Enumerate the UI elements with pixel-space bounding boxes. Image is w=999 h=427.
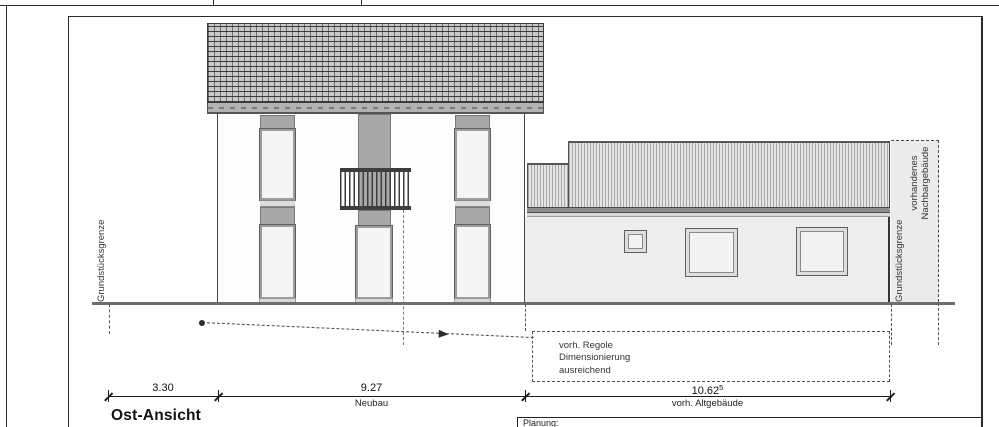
dimension-value-1062: 10.625	[525, 383, 890, 397]
dimension-value-927: 9.27	[218, 382, 525, 394]
property-boundary-line-right	[891, 304, 892, 345]
altgebaeude-window-middle	[685, 228, 738, 277]
altgebaeude-roof-high-segment	[568, 141, 890, 207]
neighbor-label-line2: Nachbargebäude	[920, 133, 931, 233]
left-lower-window	[260, 225, 295, 299]
dimension-number: 10.62	[692, 385, 720, 397]
window-pane	[800, 231, 844, 272]
right-window-header-panel	[455, 115, 490, 129]
balcony	[340, 168, 411, 210]
center-pier-lower	[358, 210, 391, 226]
left-window-sill	[260, 200, 295, 207]
header-separator-line	[361, 0, 362, 5]
neighbor-zone-dashed-line	[938, 303, 939, 345]
left-spandrel-panel	[260, 207, 295, 225]
note-line2: Dimensionierung	[559, 352, 630, 364]
center-pier-upper	[358, 114, 391, 169]
arrowhead-icon	[439, 329, 449, 337]
neubau-label: Neubau	[218, 398, 525, 409]
dimension-value-330: 3.30	[108, 382, 218, 394]
altgebaeude-roof-low-segment	[527, 163, 568, 207]
titleblock-top-border	[517, 417, 983, 418]
dimension-superscript: 5	[719, 383, 723, 392]
note-box: vorh. Regole Dimensionierung ausreichend	[532, 331, 890, 382]
property-boundary-label-left: Grundstücksgrenze	[96, 216, 107, 302]
neighbor-label-line1: vorhandenes	[909, 133, 920, 233]
center-lower-window	[356, 226, 392, 299]
altgebaeude-label: vorh. Altgebäude	[525, 398, 890, 409]
right-upper-window	[455, 129, 490, 200]
window-pane	[689, 232, 734, 273]
right-spandrel-panel	[455, 207, 490, 225]
header-separator-line	[213, 0, 214, 5]
ground-line	[92, 302, 955, 305]
sight-line-dot-icon	[199, 319, 205, 325]
page-title: Ost-Ansicht	[111, 407, 201, 425]
balcony-railing-bars	[340, 172, 411, 206]
sheet-outer-top-border	[0, 5, 999, 6]
extension-dashed-line	[525, 304, 526, 331]
left-upper-window	[260, 129, 295, 200]
property-boundary-line-left	[109, 304, 110, 334]
left-window-header-panel	[260, 115, 295, 129]
sheet-outer-left-border	[6, 5, 7, 427]
titleblock-left-border	[517, 417, 518, 427]
note-line1: vorh. Regole	[559, 340, 630, 352]
balcony-projection-dashed-line	[403, 210, 404, 345]
elevation-drawing-sheet: vorhandenes Nachbargebäude Grundstücksgr…	[0, 0, 999, 427]
note-line3: ausreichend	[559, 365, 630, 377]
neighbor-building-label: vorhandenes Nachbargebäude	[909, 133, 931, 233]
right-window-sill	[455, 200, 490, 207]
right-lower-window	[455, 225, 490, 299]
property-boundary-label-right: Grundstücksgrenze	[894, 216, 905, 302]
altgebaeude-small-window	[624, 230, 647, 253]
planung-label: Planung:	[523, 418, 559, 427]
note-text: vorh. Regole Dimensionierung ausreichend	[559, 340, 630, 377]
altgebaeude-window-right	[796, 227, 848, 276]
neubau-tiled-roof	[207, 23, 544, 103]
neubau-eaves-band	[207, 103, 544, 114]
window-pane	[628, 234, 643, 249]
